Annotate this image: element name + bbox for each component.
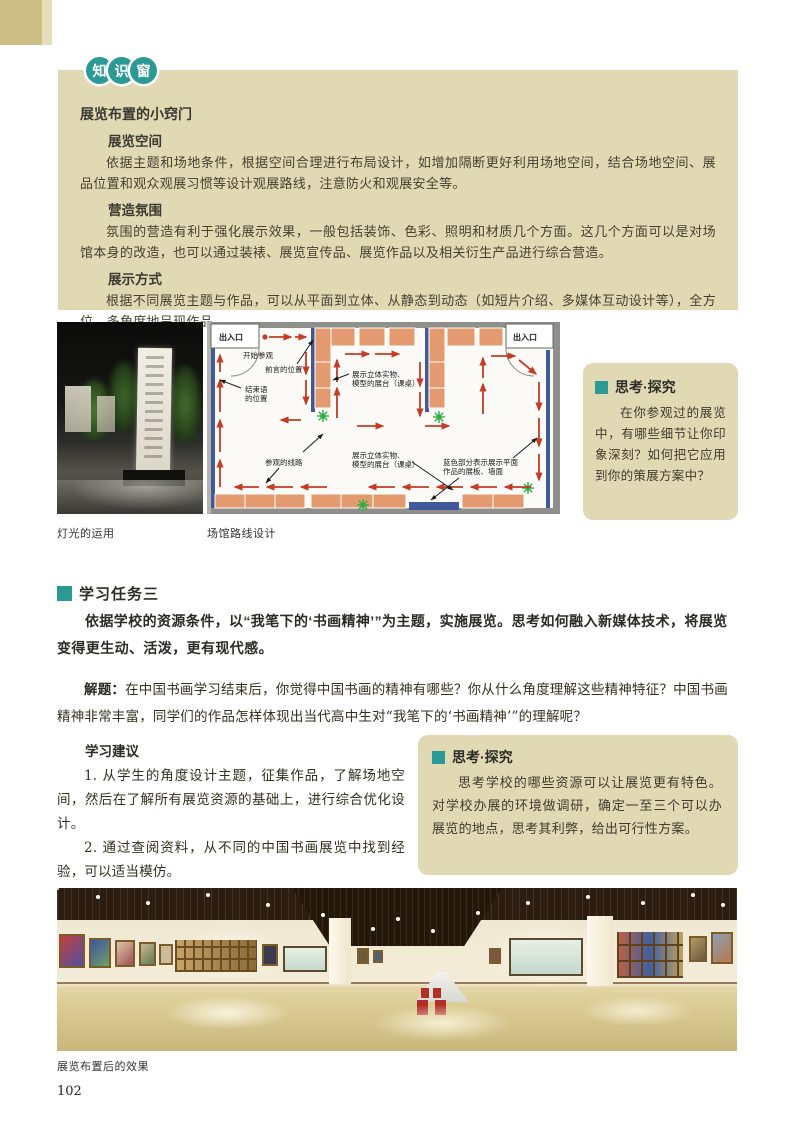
- wall-pillar: [587, 916, 613, 986]
- kw-paragraph-atmosphere: 氛围的营造有利于强化展示效果，一般包括装饰、色彩、照明和材质几个方面。这几个方面…: [80, 222, 716, 264]
- task-jieti-paragraph: 解题：在中国书画学习结束后，你觉得中国书画的精神有哪些？你从什么角度理解这些精神…: [57, 676, 739, 731]
- calligraphy-scroll: [136, 348, 172, 473]
- lighting-caption: 灯光的运用: [57, 525, 115, 541]
- lighting-photo: [57, 322, 203, 514]
- jieti-label: 解题：: [84, 682, 125, 697]
- think-explore-body: 思考学校的哪些资源可以让展览更有特色。对学校办展的环境做调研，确定一至三个可以办…: [432, 772, 722, 841]
- framed-artwork-grid: [175, 940, 257, 972]
- framed-artwork: [489, 948, 501, 964]
- think-explore-header: 思考·探究: [432, 747, 722, 767]
- floor-reflections: [57, 983, 737, 1051]
- page-number: 102: [57, 1084, 82, 1099]
- kw-subheading-atmosphere: 营造氛围: [108, 199, 716, 219]
- framed-artwork: [139, 942, 156, 966]
- section-bullet-icon: [595, 381, 608, 394]
- floorplan-caption: 场馆路线设计: [207, 525, 276, 541]
- floorplan-figure: 出入口 出入口: [207, 322, 560, 514]
- plan-blue-wall-bottom: [409, 502, 459, 510]
- kw-subheading-space: 展览空间: [108, 130, 716, 150]
- ceiling-lights: [57, 888, 59, 890]
- plan-label-closing-2: 的位置: [245, 393, 268, 403]
- corner-decoration-dark: [0, 0, 42, 45]
- plan-label-start: 开始参观: [243, 350, 273, 360]
- section-bullet-icon: [57, 586, 72, 601]
- plant-foliage: [169, 366, 201, 444]
- section-bullet-icon: [432, 751, 445, 764]
- framed-artwork: [262, 944, 278, 966]
- framed-artwork: [711, 932, 733, 964]
- panorama-caption: 展览布置后的效果: [57, 1058, 149, 1074]
- framed-artwork: [115, 940, 135, 967]
- jieti-body: 在中国书画学习结束后，你觉得中国书画的精神有哪些？你从什么角度理解这些精神特征？…: [57, 682, 728, 725]
- study-advice-block: 学习建议 1. 从学生的角度设计主题，征集作品，了解场地空间，然后在了解所有展览…: [57, 740, 405, 884]
- plan-label-platform2-2: 模型的展台（课桌）: [352, 459, 420, 469]
- reflective-floor: [57, 480, 203, 514]
- plan-partition-1: [311, 328, 331, 412]
- kw-subheading-display: 展示方式: [108, 268, 716, 288]
- study-advice-item-2: 2. 通过查阅资料，从不同的中国书画展览中找到经验，可以适当模仿。: [57, 836, 405, 884]
- textbook-page: 知 识 窗 展览布置的小窍门 展览空间 依据主题和场地条件，根据空间合理进行布局…: [0, 0, 794, 1123]
- display-window: [283, 946, 327, 972]
- framed-artwork: [357, 948, 369, 964]
- lit-scroll-panel: [65, 386, 91, 432]
- framed-artwork-grid: [617, 932, 683, 978]
- think-explore-box-2: 思考·探究 思考学校的哪些资源可以让展览更有特色。对学校办展的环境做调研，确定一…: [418, 735, 738, 875]
- kw-paragraph-space: 依据主题和场地条件，根据空间合理进行布局设计，如增加隔断更好利用场地空间，结合场…: [80, 153, 716, 195]
- plan-blue-wall-left: [211, 348, 215, 508]
- framed-artwork: [89, 938, 111, 968]
- lit-scroll-panel: [97, 396, 115, 432]
- framed-artwork: [159, 944, 173, 965]
- svg-text:出入口: 出入口: [219, 332, 243, 342]
- plan-label-foreword: 前言的位置: [265, 364, 303, 374]
- framed-artwork: [689, 936, 707, 962]
- plan-platforms-bottom: [215, 494, 524, 508]
- plan-partition-2: [425, 328, 445, 412]
- task-three-title: 学习任务三: [79, 583, 159, 604]
- think-explore-title: 思考·探究: [615, 377, 676, 397]
- plan-label-platform1-1: 展示立体实物、: [352, 369, 405, 379]
- think-explore-title: 思考·探究: [452, 747, 513, 767]
- task-three-header: 学习任务三: [57, 583, 159, 604]
- plan-blue-wall-right: [546, 350, 550, 508]
- badge-char: 窗: [130, 57, 157, 84]
- wall-pillar: [329, 918, 351, 984]
- framed-artwork: [373, 950, 383, 963]
- think-explore-box-1: 思考·探究 在你参观过的展览中，有哪些细节让你印象深刻？如何把它应用到你的策展方…: [583, 363, 738, 520]
- think-explore-body: 在你参观过的展览中，有哪些细节让你印象深刻？如何把它应用到你的策展方案中？: [595, 402, 726, 486]
- knowledge-window-box: 展览布置的小窍门 展览空间 依据主题和场地条件，根据空间合理进行布局设计，如增加…: [58, 70, 738, 310]
- panorama-ceiling-center: [292, 888, 502, 946]
- plan-label-blue-2: 作品的展板、墙面: [443, 466, 503, 476]
- study-advice-title: 学习建议: [85, 740, 405, 760]
- framed-artwork: [59, 934, 85, 968]
- knowledge-window-title: 展览布置的小窍门: [80, 104, 716, 124]
- display-window: [509, 938, 583, 976]
- knowledge-window-badge: 知 识 窗: [86, 57, 152, 84]
- plan-label-closing-1: 结束语: [245, 384, 268, 394]
- plan-label-blue-1: 蓝色部分表示展示平面: [443, 457, 518, 467]
- think-explore-header: 思考·探究: [595, 377, 726, 397]
- exhibition-panorama-photo: [57, 888, 737, 1051]
- corner-decoration-light: [42, 0, 52, 45]
- plan-label-platform1-2: 模型的展台（课桌）: [352, 378, 420, 388]
- plan-label-platform2-1: 展示立体实物、: [352, 450, 405, 460]
- task-intro-paragraph: 依据学校的资源条件，以“我笔下的‘书画精神’”为主题，实施展览。思考如何融入新媒…: [57, 608, 739, 662]
- plan-label-route: 参观的线路: [265, 457, 303, 467]
- svg-text:出入口: 出入口: [513, 332, 537, 342]
- study-advice-item-1: 1. 从学生的角度设计主题，征集作品，了解场地空间，然后在了解所有展览资源的基础…: [57, 764, 405, 836]
